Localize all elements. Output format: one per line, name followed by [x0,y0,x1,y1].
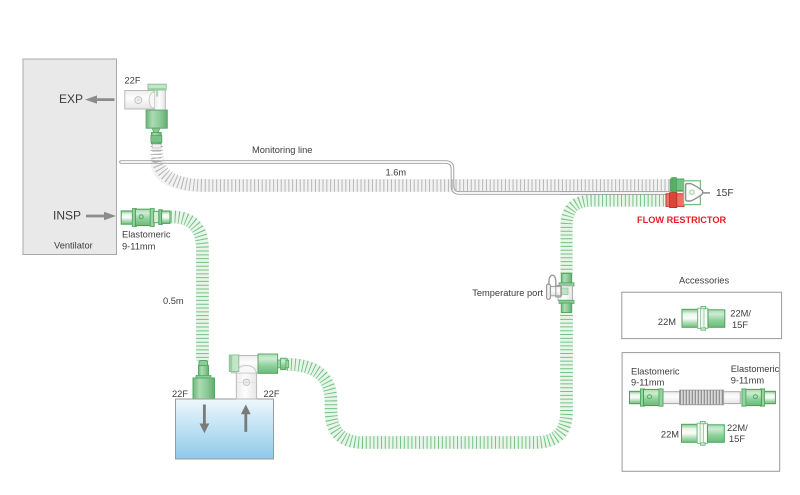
svg-text:15F: 15F [716,188,734,199]
svg-text:15F: 15F [732,320,748,330]
svg-text:0.5m: 0.5m [163,296,184,306]
svg-text:22M: 22M [661,430,679,440]
svg-text:Elastomeric: Elastomeric [731,364,780,374]
svg-text:15F: 15F [729,434,745,444]
svg-text:1.6m: 1.6m [386,168,407,178]
svg-text:Ventilator: Ventilator [54,241,93,251]
svg-text:22M/: 22M/ [730,309,751,319]
svg-text:FLOW RESTRICTOR: FLOW RESTRICTOR [637,215,727,225]
svg-text:22F: 22F [172,389,188,399]
svg-text:Monitoring line: Monitoring line [252,145,312,155]
svg-text:Elastomeric: Elastomeric [631,366,680,376]
svg-text:INSP: INSP [53,209,81,223]
svg-text:9-11mm: 9-11mm [122,241,156,251]
svg-text:22M/: 22M/ [727,423,748,433]
svg-text:9-11mm: 9-11mm [731,375,765,385]
svg-text:9-11mm: 9-11mm [631,378,665,388]
svg-text:EXP: EXP [59,92,83,106]
svg-text:22M: 22M [658,317,676,327]
svg-text:22F: 22F [264,389,280,399]
svg-text:Temperature port: Temperature port [472,288,543,298]
svg-text:22F: 22F [125,76,141,86]
svg-text:Accessories: Accessories [679,276,729,286]
svg-text:Elastomeric: Elastomeric [122,229,171,239]
